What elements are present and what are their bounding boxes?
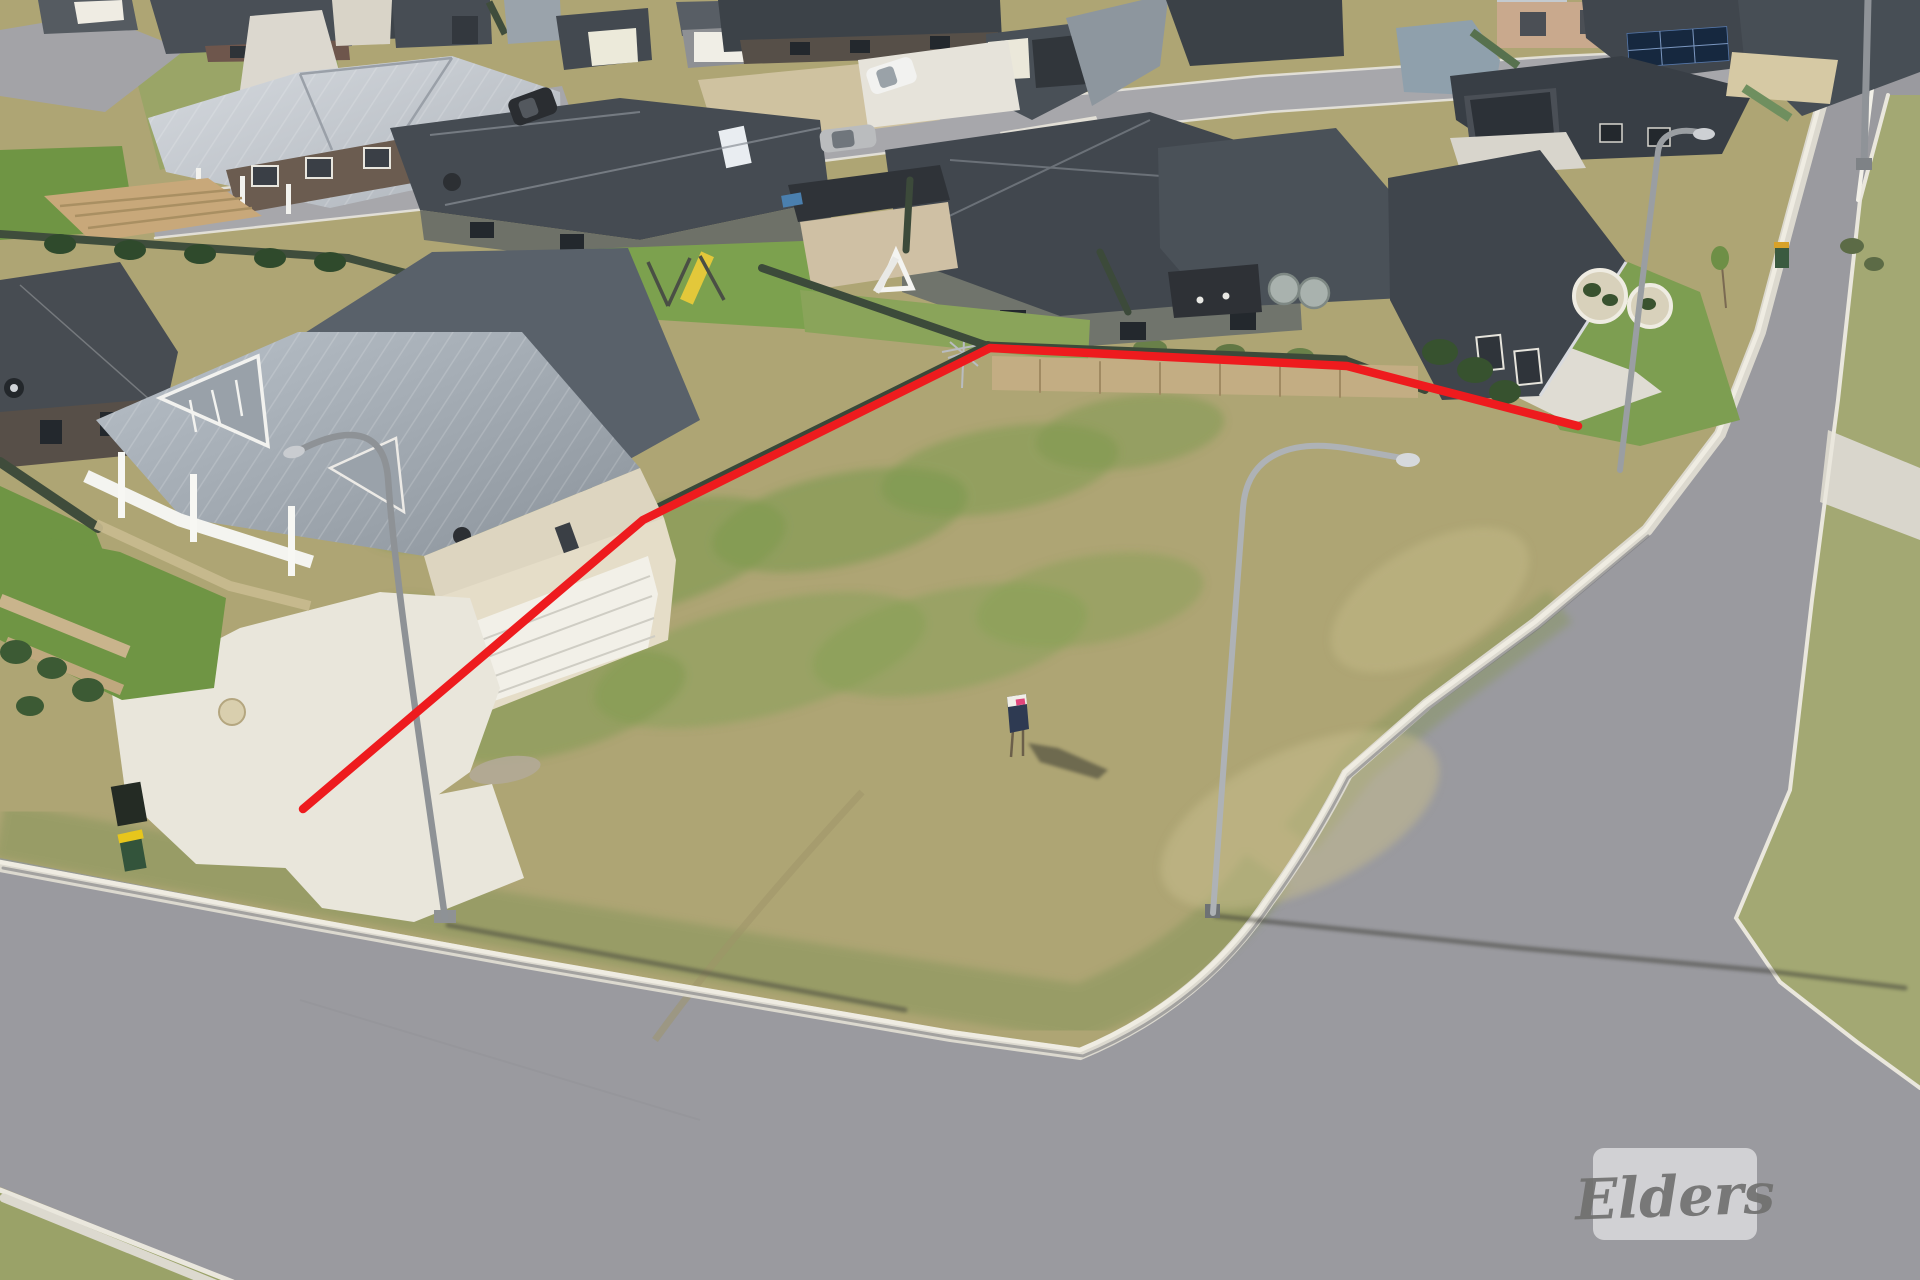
garage-door xyxy=(588,28,638,66)
patio-chair xyxy=(1223,293,1230,300)
lamp-head xyxy=(1396,453,1420,467)
porch-post xyxy=(190,474,197,542)
aerial-photo: Elders xyxy=(0,0,1920,1280)
garden-bed xyxy=(1574,270,1626,322)
satellite-dish-icon xyxy=(443,173,461,191)
lamp-head xyxy=(1693,128,1715,140)
satellite-dish-center xyxy=(10,384,18,392)
porch-post xyxy=(288,506,295,576)
window xyxy=(470,222,494,238)
base xyxy=(1856,158,1872,170)
balcony xyxy=(1520,12,1546,36)
light-roof xyxy=(504,0,562,44)
house-top-f-roof xyxy=(1166,0,1344,66)
patio-chair xyxy=(1197,297,1204,304)
window xyxy=(306,158,332,178)
window xyxy=(850,40,870,53)
shrub xyxy=(1840,238,1864,254)
porch-post xyxy=(118,452,125,518)
fence-between-yards xyxy=(906,180,910,250)
watermark: Elders xyxy=(1572,1148,1776,1240)
window xyxy=(1514,349,1541,385)
window xyxy=(560,234,584,250)
pole xyxy=(1864,0,1868,166)
window xyxy=(930,36,950,49)
sign-pink-stripe xyxy=(1016,698,1026,705)
wheelie-bin-small xyxy=(1774,242,1789,268)
window xyxy=(1230,312,1256,330)
manhole xyxy=(219,699,245,725)
house-top-c xyxy=(332,0,562,48)
water-tank xyxy=(1269,274,1299,304)
white-entry-wall xyxy=(332,0,392,46)
shrub xyxy=(1864,257,1884,271)
garage-door xyxy=(1470,92,1554,140)
window xyxy=(252,166,278,186)
window xyxy=(1600,124,1622,142)
window xyxy=(40,420,62,444)
house-top-a xyxy=(38,0,138,34)
logo-text: Elders xyxy=(1572,1161,1776,1234)
aerial-scene: Elders xyxy=(0,0,1920,1280)
garage-door xyxy=(74,0,124,24)
sandy-path xyxy=(1726,52,1838,104)
water-tank xyxy=(1299,278,1329,308)
window xyxy=(364,148,390,168)
alfresco-patio xyxy=(1168,264,1262,318)
garage-door-dark xyxy=(452,16,478,44)
window xyxy=(1120,322,1146,340)
window xyxy=(790,42,810,55)
veranda-post xyxy=(286,184,291,214)
